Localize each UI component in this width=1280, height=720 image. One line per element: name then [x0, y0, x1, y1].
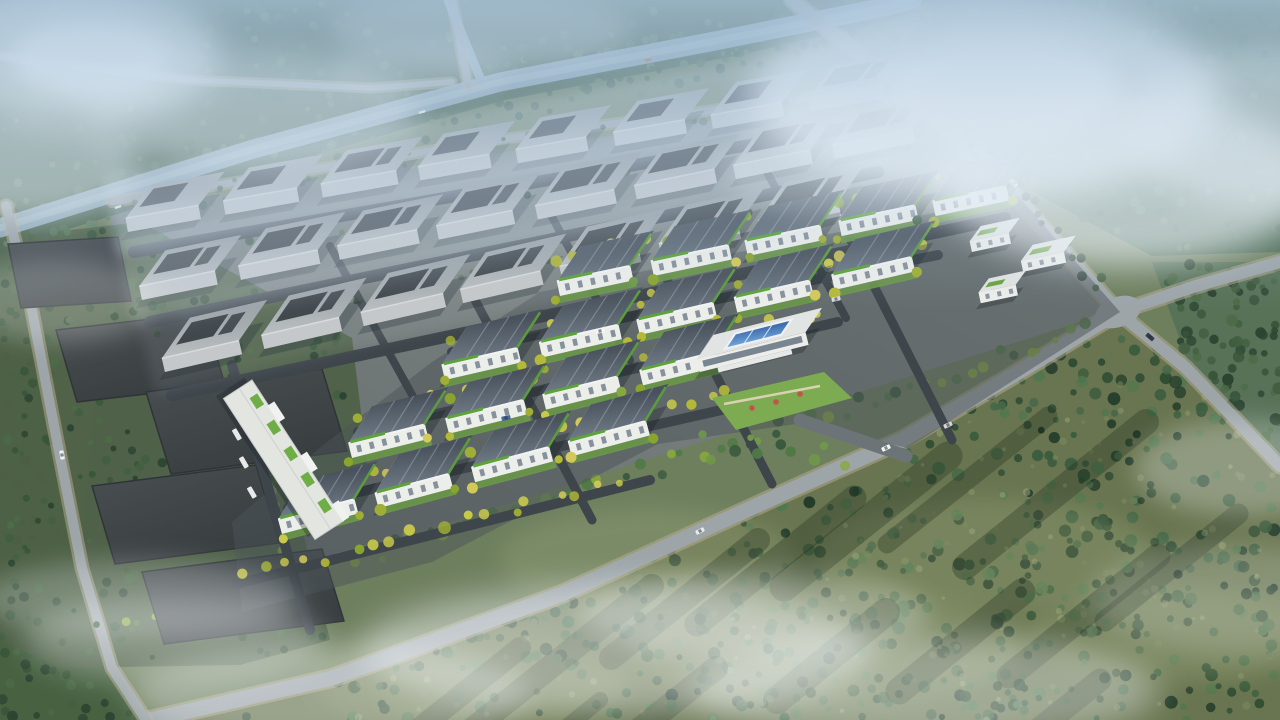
tree [1000, 408, 1010, 418]
tree [261, 561, 272, 572]
tree [89, 471, 96, 478]
grass-speckle [1157, 702, 1161, 706]
tree [299, 555, 307, 563]
tree [1206, 703, 1216, 713]
tree [1014, 454, 1022, 462]
tree [1259, 520, 1272, 533]
tree [67, 424, 74, 431]
tree [87, 538, 92, 543]
tree [1172, 402, 1181, 411]
cloud-mist [580, 570, 930, 660]
tree [101, 699, 109, 707]
atmospheric-top-haze [0, 0, 1280, 310]
tree [0, 648, 10, 658]
tree [1, 336, 7, 342]
tree [514, 509, 522, 517]
tree [280, 558, 289, 567]
tree [124, 468, 131, 475]
tree [1102, 372, 1113, 383]
tree [1239, 681, 1250, 692]
tree [1162, 365, 1172, 375]
tree [804, 496, 816, 508]
tree [994, 404, 1001, 411]
tree [1127, 512, 1139, 524]
tree [50, 358, 59, 367]
tree [559, 491, 567, 499]
tree [1249, 526, 1261, 538]
tree [667, 399, 677, 409]
tree [820, 442, 828, 450]
grass-speckle [1000, 628, 1003, 631]
grass-speckle [1117, 381, 1123, 387]
tree [1183, 331, 1190, 338]
tree [1150, 356, 1160, 366]
tree [1186, 687, 1193, 694]
grass-speckle [1000, 492, 1006, 498]
tree [1071, 432, 1077, 438]
tree [3, 436, 12, 445]
tree [667, 449, 676, 458]
tree [635, 459, 646, 470]
tree [1232, 336, 1243, 347]
tree [1032, 450, 1043, 461]
tree [1220, 342, 1227, 349]
tree [1215, 683, 1221, 689]
tree [446, 336, 456, 346]
tree [1221, 385, 1230, 394]
tree [1271, 327, 1278, 334]
tree [1241, 384, 1248, 391]
tree [23, 495, 30, 502]
tree [1169, 376, 1182, 389]
grass-speckle [1032, 559, 1038, 565]
tree [5, 679, 15, 689]
tree [1180, 704, 1186, 710]
tree [594, 481, 602, 489]
grass-speckle [1031, 464, 1035, 468]
tree [706, 455, 716, 465]
tree [1193, 348, 1200, 355]
tree [776, 439, 787, 450]
tree [1155, 389, 1167, 401]
grass-speckle [1185, 411, 1190, 416]
tree [42, 435, 50, 443]
grass-speckle [941, 596, 945, 600]
grass-speckle [1023, 488, 1031, 496]
tree [1230, 391, 1241, 402]
tree [445, 393, 456, 404]
tree [1096, 502, 1103, 509]
tree [1098, 358, 1105, 365]
tree [729, 445, 741, 457]
aerial-render-viewport [0, 0, 1280, 720]
tree [19, 451, 25, 457]
tree [1261, 350, 1268, 357]
tree [809, 454, 821, 466]
tree [66, 680, 76, 690]
tree [623, 473, 630, 480]
tree [1209, 335, 1218, 344]
tree [1252, 690, 1259, 697]
industrial-park-aerial-scene [0, 0, 1280, 720]
tree [68, 700, 75, 707]
grass-speckle [1104, 416, 1109, 421]
tree [13, 648, 20, 655]
tree [772, 430, 780, 438]
tree [81, 704, 91, 714]
grass-speckle [1048, 534, 1053, 539]
tree [1125, 457, 1134, 466]
tree [569, 491, 579, 501]
grass-speckle [1053, 455, 1058, 460]
grass-speckle [864, 551, 872, 559]
tree [676, 450, 683, 457]
tree [1227, 708, 1233, 714]
tree [1248, 354, 1258, 364]
grass-speckle [1242, 702, 1250, 710]
grass-speckle [1131, 497, 1138, 504]
tree [125, 429, 130, 434]
tree [1016, 397, 1023, 404]
tree [1049, 432, 1060, 443]
tree [658, 470, 667, 479]
grass-speckle [963, 523, 968, 528]
tree [105, 436, 112, 443]
tree [1258, 390, 1265, 397]
tree [1174, 411, 1182, 419]
tree [5, 534, 14, 543]
tree [1233, 351, 1245, 363]
tree [1102, 409, 1110, 417]
tree [33, 712, 40, 719]
tree [41, 498, 48, 505]
tree [404, 524, 415, 535]
tree [1226, 314, 1238, 326]
tree [926, 440, 935, 449]
tree [71, 405, 78, 412]
tree [21, 431, 28, 438]
grass-speckle [1080, 526, 1086, 532]
tree [686, 399, 696, 409]
tree [840, 461, 850, 471]
tree [1108, 392, 1121, 405]
tree [35, 518, 41, 524]
tree [48, 709, 55, 716]
grass-speckle [1056, 608, 1062, 614]
tree [110, 446, 116, 452]
tree [368, 539, 379, 550]
tree [1262, 368, 1269, 375]
tree [353, 413, 363, 423]
tree [102, 456, 111, 465]
tree [48, 516, 57, 525]
tree [141, 455, 150, 464]
tree [339, 392, 347, 400]
tree [321, 558, 330, 567]
grass-speckle [1081, 560, 1086, 565]
tree [785, 446, 796, 457]
grass-speckle [916, 565, 923, 572]
tree [1127, 380, 1139, 392]
tree [998, 469, 1005, 476]
grass-speckle [1118, 408, 1124, 414]
tree [1105, 472, 1114, 481]
tree [1089, 388, 1101, 400]
tree [87, 440, 93, 446]
tree [970, 432, 979, 441]
tree [95, 418, 102, 425]
tree [48, 503, 54, 509]
tree [518, 496, 528, 506]
tree [1227, 688, 1236, 697]
tree [479, 509, 490, 520]
tree [128, 446, 136, 454]
tree [13, 516, 20, 523]
tree [464, 511, 473, 520]
tree [1258, 330, 1268, 340]
tree [21, 413, 27, 419]
tree [1206, 683, 1218, 695]
tree [1111, 410, 1118, 417]
grass-speckle [1159, 432, 1163, 436]
tree [28, 378, 37, 387]
tree [1118, 335, 1126, 343]
grass-speckle [969, 528, 975, 534]
tree [1196, 402, 1208, 414]
tree [1068, 358, 1077, 367]
tree [1070, 389, 1076, 395]
tree [1212, 377, 1219, 384]
tree [698, 430, 706, 438]
tree [1029, 398, 1038, 407]
grass-speckle [968, 420, 971, 423]
tree [78, 474, 83, 479]
tree [752, 448, 763, 459]
tree [158, 458, 167, 467]
tree [1199, 328, 1209, 338]
tree [107, 477, 113, 483]
tree [355, 545, 365, 555]
grass-speckle [1082, 420, 1085, 423]
tree [1228, 364, 1237, 373]
tree [719, 385, 730, 396]
grass-speckle [1059, 438, 1067, 446]
tree [1135, 373, 1144, 382]
tree [25, 674, 33, 682]
tree [1129, 345, 1140, 356]
tree [1026, 406, 1033, 413]
tree [1207, 356, 1215, 364]
grass-speckle [852, 553, 859, 560]
tree [22, 390, 28, 396]
tree [747, 435, 753, 441]
tree [717, 445, 725, 453]
tree [25, 548, 31, 554]
grass-speckle [937, 430, 944, 437]
tree [465, 447, 476, 458]
tree [438, 521, 451, 534]
grass-speckle [901, 557, 909, 565]
tree [1255, 699, 1265, 709]
grass-speckle [1238, 673, 1244, 679]
tree [383, 536, 394, 547]
grass-speckle [1122, 498, 1127, 503]
tree [1222, 374, 1234, 386]
tree [7, 521, 15, 529]
flower-bed [773, 399, 779, 405]
tree [12, 447, 19, 454]
tree [616, 480, 623, 487]
tree [1076, 376, 1088, 388]
tree [1197, 309, 1206, 318]
tree [20, 367, 29, 376]
flower-bed [797, 391, 803, 397]
tree [1107, 419, 1116, 428]
tree [86, 681, 94, 689]
flower-bed [749, 405, 755, 411]
grass-speckle [944, 540, 950, 546]
tree [8, 560, 15, 567]
tree [136, 463, 145, 472]
tree [1018, 411, 1027, 420]
tree [1138, 497, 1145, 504]
tree [1076, 407, 1084, 415]
tree [1026, 611, 1036, 621]
tree [20, 659, 30, 669]
tree [1165, 696, 1178, 709]
grass-speckle [1065, 417, 1070, 422]
tree [49, 667, 57, 675]
